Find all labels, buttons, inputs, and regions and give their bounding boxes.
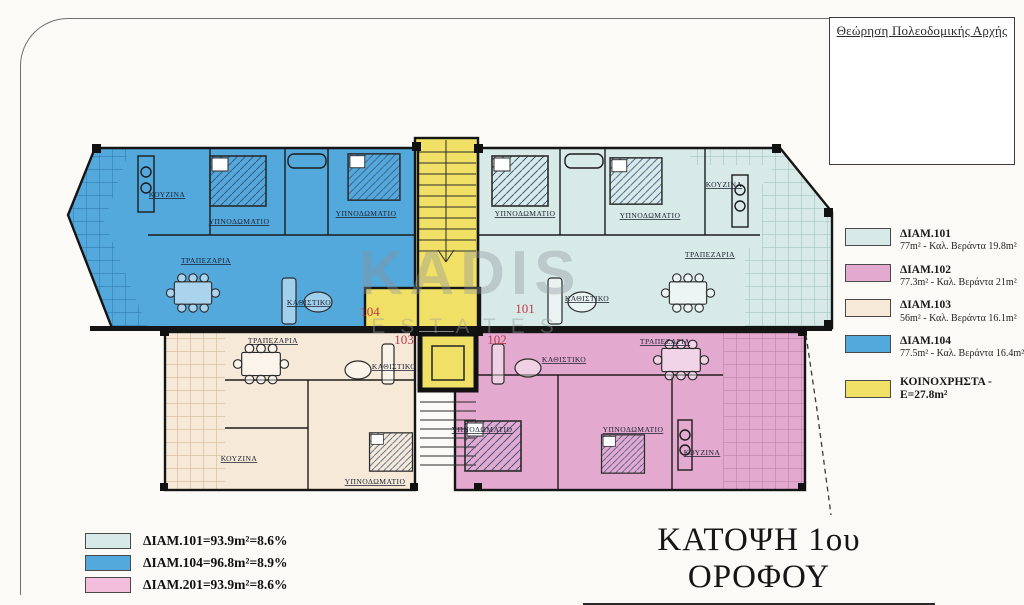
legend-name: ΔΙΑΜ.102 [900,264,1017,277]
legend-swatch-103 [845,299,891,317]
ratio-row-101: ΔΙΑΜ.101=93.9m²=8.6% [85,533,288,549]
legend-row-common: ΚΟΙΝΟΧΡΗΣΤΑ - E=27.8m² [845,376,1020,402]
room-label: ΤΡΑΠΕΖΑΡΙΑ [248,336,298,345]
ratio-swatch-201 [85,577,131,593]
apartment-102-veranda [723,332,805,490]
floor-plan-drawing: ΚΟΥΖΙΝΑ ΥΠΝΟΔΩΜΑΤΙΟ ΥΠΝΟΔΩΜΑΤΙΟ ΤΡΑΠΕΖΑΡ… [60,130,840,515]
room-label: ΤΡΑΠΕΖΑΡΙΑ [181,256,231,265]
ratio-label: ΔΙΑΜ.201=93.9m²=8.6% [143,577,288,593]
legend-detail: 77.3m² - Καλ. Βεράντα 21m² [900,277,1017,289]
legend-row-101: ΔΙΑΜ.101 77m² - Καλ. Βεράντα 19.8m² [845,228,1020,253]
legend-name: ΔΙΑΜ.101 [900,228,1017,241]
room-label: ΚΟΥΖΙΝΑ [149,190,186,199]
stair-landing [365,288,480,328]
apartment-101-veranda-top [690,149,780,165]
room-label: ΥΠΝΟΔΩΜΑΤΙΟ [345,477,406,486]
legend-detail: 56m² - Καλ. Βεράντα 16.1m² [900,313,1017,325]
legend-name: ΔΙΑΜ.103 [900,299,1017,312]
legend-swatch-104 [845,335,891,353]
ratio-label: ΔΙΑΜ.101=93.9m²=8.6% [143,533,288,549]
plot-boundary-dashed-line [806,335,831,515]
room-label: ΚΟΥΖΙΝΑ [706,180,743,189]
legend-swatch-101 [845,228,891,246]
apartment-number: 103 [394,332,414,347]
ratio-row-104: ΔΙΑΜ.104=96.8m²=8.9% [85,555,288,571]
legend-row-103: ΔΙΑΜ.103 56m² - Καλ. Βεράντα 16.1m² [845,299,1020,324]
room-label: ΥΠΝΟΔΩΜΑΤΙΟ [209,217,270,226]
legend-row-102: ΔΙΑΜ.102 77.3m² - Καλ. Βεράντα 21m² [845,264,1020,289]
legend-detail: 77m² - Καλ. Βεράντα 19.8m² [900,241,1017,253]
ratio-swatch-104 [85,555,131,571]
approval-box-title: Θεώρηση Πολεοδομικής Αρχής [837,23,1008,39]
room-label: ΚΟΥΖΙΝΑ [221,454,258,463]
apartment-number: 101 [515,301,535,316]
legend-row-104: ΔΙΑΜ.104 77.5m² - Καλ. Βεράντα 16.4m² [845,335,1020,360]
ratio-swatch-101 [85,533,131,549]
coverage-ratio-legend: ΔΙΑΜ.101=93.9m²=8.6% ΔΙΑΜ.104=96.8m²=8.9… [85,533,288,599]
room-label: ΥΠΝΟΔΩΜΑΤΙΟ [336,209,397,218]
room-label: ΥΠΝΟΔΩΜΑΤΙΟ [620,211,681,220]
sheet-title: ΚΑΤΟΨΗ 1ου ΟΡΟΦΟΥ [583,522,935,605]
apartment-number: 104 [360,304,380,319]
legend-detail: 77.5m² - Καλ. Βεράντα 16.4m² [900,348,1024,360]
room-label: ΥΠΝΟΔΩΜΑΤΙΟ [603,425,664,434]
floor-plan: ΚΟΥΖΙΝΑ ΥΠΝΟΔΩΜΑΤΙΟ ΥΠΝΟΔΩΜΑΤΙΟ ΤΡΑΠΕΖΑΡ… [60,130,840,515]
ratio-row-201: ΔΙΑΜ.201=93.9m²=8.6% [85,577,288,593]
room-label: ΚΑΘΙΣΤΙΚΟ [372,362,416,371]
room-label: ΥΠΝΟΔΩΜΑΤΙΟ [452,425,513,434]
apartment-103-veranda [165,332,225,490]
legend-name: ΚΟΙΝΟΧΡΗΣΤΑ - E=27.8m² [900,376,1020,402]
legend-swatch-102 [845,264,891,282]
planning-authority-approval-box: Θεώρηση Πολεοδομικής Αρχής [829,17,1015,165]
room-label: ΚΑΘΙΣΤΙΚΟ [565,294,609,303]
legend-swatch-common [845,380,891,398]
apartment-number: 102 [487,332,507,347]
ratio-label: ΔΙΑΜ.104=96.8m²=8.9% [143,555,288,571]
room-label: ΥΠΝΟΔΩΜΑΤΙΟ [495,209,556,218]
legend-name: ΔΙΑΜ.104 [900,335,1024,348]
apartment-area-legend: ΔΙΑΜ.101 77m² - Καλ. Βεράντα 19.8m² ΔΙΑΜ… [845,228,1020,413]
room-label: ΚΑΘΙΣΤΙΚΟ [542,355,586,364]
room-label: ΚΟΥΖΙΝΑ [684,448,721,457]
room-label: ΚΑΘΙΣΤΙΚΟ [287,298,331,307]
room-label: ΤΡΑΠΕΖΑΡΙΑ [685,250,735,259]
room-label: ΤΡΑΠΕΖΑΡΙΑ [640,337,690,346]
